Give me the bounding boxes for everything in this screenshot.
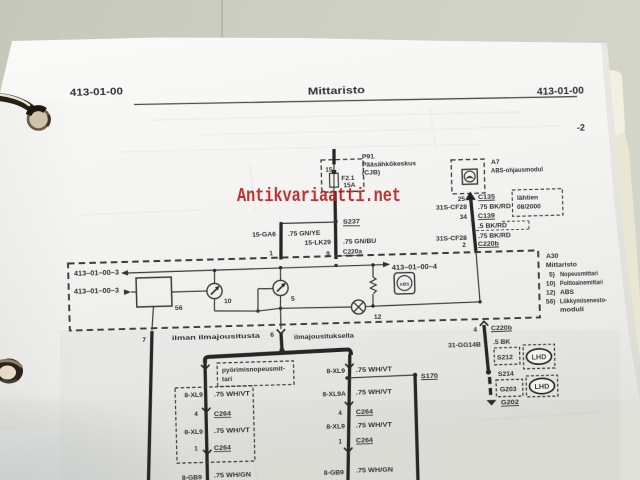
svg-text:8-GB9: 8-GB9 <box>324 469 344 477</box>
svg-text:56: 56 <box>175 305 183 312</box>
svg-text:5: 5 <box>291 296 295 303</box>
svg-text:.5 BK/RD: .5 BK/RD <box>478 222 507 230</box>
svg-text:-2: -2 <box>577 123 585 133</box>
svg-text:7: 7 <box>142 337 146 344</box>
svg-text:8-XL9: 8-XL9 <box>326 368 345 376</box>
svg-text:.75 WH/VT: .75 WH/VT <box>356 389 393 397</box>
svg-text:.75 BK/RD: .75 BK/RD <box>478 203 511 211</box>
svg-text:413–01–00–4: 413–01–00–4 <box>392 262 437 272</box>
svg-text:8-XL9A: 8-XL9A <box>322 391 346 399</box>
svg-text:A7: A7 <box>491 159 500 166</box>
svg-text:15-GA6: 15-GA6 <box>252 231 276 239</box>
svg-text:413–01–00–3: 413–01–00–3 <box>74 268 119 278</box>
svg-text:.75 WH/VT: .75 WH/VT <box>214 427 251 435</box>
svg-text:.75 WH/VT: .75 WH/VT <box>356 366 393 374</box>
svg-text:.75 WH/GN: .75 WH/GN <box>214 471 251 479</box>
svg-text:ABS-ohjausmodul: ABS-ohjausmodul <box>491 166 543 174</box>
svg-text:15: 15 <box>325 166 333 173</box>
svg-text:.75 WH/VT: .75 WH/VT <box>356 422 393 430</box>
svg-text:8-XL9: 8-XL9 <box>184 429 203 437</box>
svg-text:15-LK29: 15-LK29 <box>304 239 331 247</box>
svg-text:413-01-00: 413-01-00 <box>70 86 123 99</box>
svg-text:Polttoainemittari: Polttoainemittari <box>560 279 603 287</box>
svg-text:lähtien: lähtien <box>517 194 538 202</box>
svg-text:08/2000: 08/2000 <box>517 203 541 211</box>
svg-text:.75 WH/VT: .75 WH/VT <box>214 390 251 398</box>
svg-text:8-GB9: 8-GB9 <box>182 474 202 480</box>
svg-text:31S-CF28: 31S-CF28 <box>436 204 467 212</box>
svg-text:413-01-00: 413-01-00 <box>537 85 584 98</box>
svg-text:Liikkymisenesto-: Liikkymisenesto- <box>560 297 607 305</box>
svg-text:56): 56) <box>546 298 556 305</box>
svg-text:34: 34 <box>460 214 468 221</box>
svg-text:.75 GN/BU: .75 GN/BU <box>343 238 377 246</box>
svg-text:1: 1 <box>194 445 198 452</box>
svg-text:S237: S237 <box>343 219 360 226</box>
svg-text:.75 BK/RD: .75 BK/RD <box>478 232 511 240</box>
svg-text:A30: A30 <box>546 253 559 260</box>
svg-text:.5 BK: .5 BK <box>493 339 511 346</box>
svg-text:.75 GN/YE: .75 GN/YE <box>288 230 321 238</box>
svg-text:2: 2 <box>462 242 466 249</box>
svg-text:LHD: LHD <box>534 382 549 391</box>
svg-text:P91: P91 <box>362 154 375 161</box>
svg-text:1: 1 <box>338 439 342 446</box>
svg-text:8-XL9: 8-XL9 <box>184 392 203 400</box>
svg-text:12: 12 <box>374 314 382 321</box>
svg-text:4: 4 <box>473 327 477 334</box>
svg-text:8-XL9: 8-XL9 <box>326 423 345 431</box>
svg-text:Mittaristo: Mittaristo <box>308 84 365 98</box>
svg-text:LHD: LHD <box>531 352 546 361</box>
svg-text:tari: tari <box>222 376 233 383</box>
svg-text:.75 WH/GN: .75 WH/GN <box>356 466 393 474</box>
svg-text:(CJB): (CJB) <box>362 169 380 177</box>
svg-text:1: 1 <box>269 250 273 257</box>
svg-text:10: 10 <box>224 298 232 305</box>
svg-text:5): 5) <box>549 271 555 278</box>
svg-text:6: 6 <box>270 332 274 339</box>
svg-text:ABS: ABS <box>400 281 410 286</box>
svg-text:ABS: ABS <box>560 289 575 296</box>
svg-text:Mittaristo: Mittaristo <box>546 261 577 269</box>
svg-text:S212: S212 <box>497 354 513 361</box>
svg-text:31-GG14B: 31-GG14B <box>448 342 481 350</box>
svg-text:10): 10) <box>546 280 556 287</box>
svg-text:S214: S214 <box>498 371 514 378</box>
svg-text:moduli: moduli <box>560 306 584 314</box>
svg-text:25: 25 <box>458 196 466 203</box>
svg-text:4: 4 <box>338 410 342 417</box>
svg-text:4: 4 <box>194 411 198 418</box>
svg-text:Nopeusmittari: Nopeusmittari <box>560 270 598 278</box>
svg-text:Antikvariaatti.net: Antikvariaatti.net <box>237 185 401 207</box>
svg-text:12): 12) <box>546 289 556 296</box>
svg-text:G203: G203 <box>500 386 517 393</box>
svg-text:413–01–00–3: 413–01–00–3 <box>74 286 119 296</box>
